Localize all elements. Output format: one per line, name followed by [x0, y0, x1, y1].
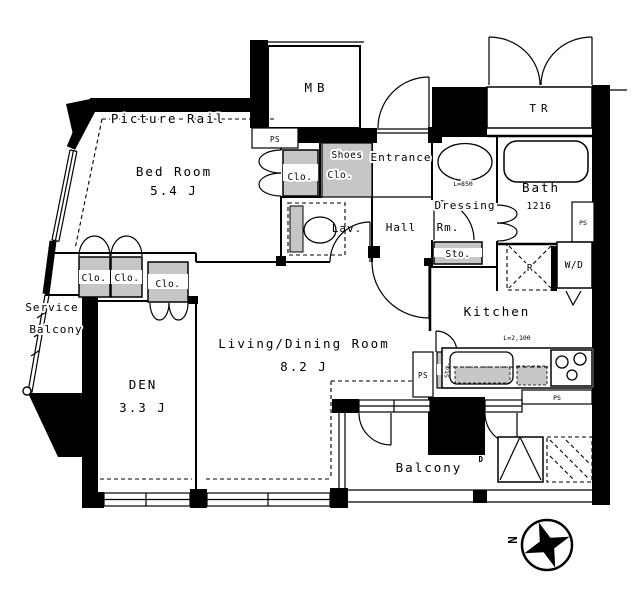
- floor-plan: Picture Rail Bed Room 5.4 J MB TR Entran…: [0, 0, 635, 592]
- balcony-window-right: [485, 400, 522, 412]
- balcony-pillar: [428, 397, 485, 455]
- balcony-rail-post: [473, 490, 487, 503]
- diagonal-wall-lower: [46, 241, 53, 294]
- refrigerator-label: R: [527, 263, 533, 274]
- mb-bottom-wall: [298, 128, 377, 143]
- bedroom-size: 5.4 J: [150, 183, 198, 198]
- basin-length-label: L=850: [453, 180, 473, 188]
- dressing-label-1: Dressing: [435, 199, 496, 212]
- den-west-wall: [82, 295, 98, 508]
- drain-circle: [23, 387, 31, 395]
- living-bottom-right-post: [330, 488, 348, 508]
- living-dining-size: 8.2 J: [280, 359, 328, 374]
- den-closet-bifold: [150, 303, 188, 320]
- ac-pad-dashed: [547, 437, 592, 482]
- bath-bifold-door: [497, 205, 517, 241]
- bedroom-label: Bed Room: [136, 164, 212, 179]
- wash-basin: [438, 144, 492, 181]
- bedroom-closet-1-label: Clo.: [82, 273, 107, 284]
- bedroom-diagonal-window: [52, 150, 77, 241]
- ps-label-living: PS: [418, 371, 428, 380]
- service-balcony-label-1: Service: [25, 301, 78, 314]
- living-dining-label: Living/Dining Room: [218, 336, 389, 351]
- mb-left-wall: [250, 40, 268, 128]
- den-size: 3.3 J: [119, 400, 167, 415]
- storage-label: Sto.: [446, 249, 471, 260]
- hall-closet-label: Clo.: [288, 172, 313, 183]
- compass: [522, 520, 572, 570]
- den-closet-label: Clo.: [156, 279, 181, 290]
- balcony-window-left: [359, 400, 430, 412]
- picture-rail-label: Picture Rail: [111, 111, 225, 126]
- ps-label-kitchen: PS: [553, 394, 561, 402]
- bedroom-closet-2-label: Clo.: [115, 273, 140, 284]
- bath-label: Bath: [522, 180, 560, 195]
- tr-left-wall: [432, 87, 487, 137]
- den-window: [104, 493, 190, 506]
- fridge-wd-divider: [551, 246, 557, 291]
- trunk-room-label: TR: [529, 102, 552, 115]
- ps-label-top: PS: [270, 135, 280, 144]
- ac-pad-solid: [498, 437, 543, 482]
- storage-kitchen-label: Sto.: [443, 362, 451, 378]
- hall-living-door: [372, 262, 429, 318]
- hall-label: Hall: [386, 221, 417, 234]
- balcony-door-mark: D: [478, 455, 483, 464]
- stove: [551, 350, 592, 386]
- den-window-left-cap: [82, 492, 104, 508]
- living-window: [207, 493, 330, 506]
- shoes-closet-label-1: Shoes: [331, 150, 362, 161]
- den-label: DEN: [129, 377, 158, 392]
- trunk-room-doors: [489, 37, 592, 85]
- balcony-upper-left-corner: [332, 399, 359, 413]
- washer-dryer-space: [557, 242, 592, 305]
- entrance-door: [378, 77, 429, 128]
- bathtub: [504, 141, 588, 182]
- entrance-label: Entrance: [371, 151, 432, 164]
- hall-closet-bifold: [259, 150, 281, 196]
- kitchen-label: Kitchen: [464, 304, 531, 319]
- ps-label-bath: PS: [579, 219, 587, 227]
- floor-plan-page: Picture Rail Bed Room 5.4 J MB TR Entran…: [0, 0, 635, 592]
- kitchen-counter: [442, 348, 594, 388]
- den-living-bottom-post: [190, 489, 207, 508]
- washer-dryer-label: W/D: [565, 260, 584, 271]
- southwest-corner-wall: [28, 393, 83, 457]
- bath-size: 1216: [527, 201, 552, 212]
- service-balcony-label-2: Balcony: [29, 323, 82, 336]
- shoes-closet-label-2: Clo.: [328, 170, 353, 181]
- balcony-label: Balcony: [396, 460, 463, 475]
- bedroom-top-wall: [90, 98, 253, 112]
- counter-length-label: L=2,100: [503, 334, 530, 342]
- balcony-door-left: [359, 413, 391, 445]
- meter-box-label: MB: [304, 80, 329, 95]
- east-wall: [592, 85, 610, 505]
- compass-north-label: N: [505, 534, 520, 544]
- lavatory-label: Lav.: [332, 222, 363, 235]
- dressing-label-2: Rm.: [437, 221, 460, 234]
